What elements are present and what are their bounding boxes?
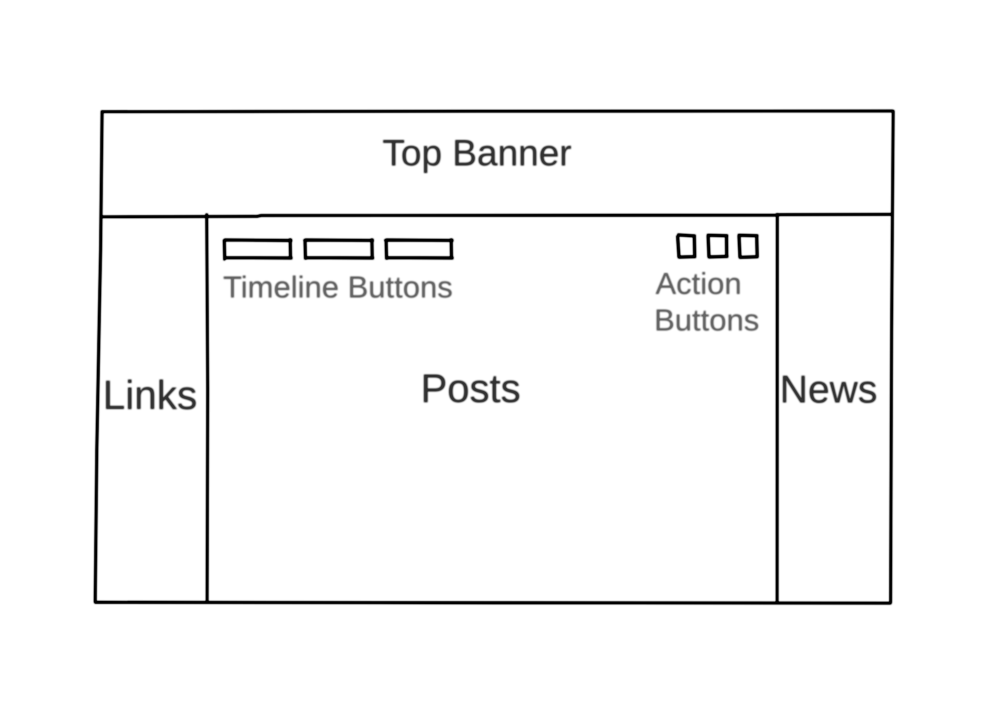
svg-text:Buttons: Buttons xyxy=(654,303,759,338)
svg-text:Timeline Buttons: Timeline Buttons xyxy=(223,270,453,305)
svg-text:Top Banner: Top Banner xyxy=(382,133,571,174)
svg-text:News: News xyxy=(780,368,878,411)
svg-text:Posts: Posts xyxy=(421,367,521,411)
svg-text:Links: Links xyxy=(103,372,198,418)
svg-text:Action: Action xyxy=(656,266,742,301)
